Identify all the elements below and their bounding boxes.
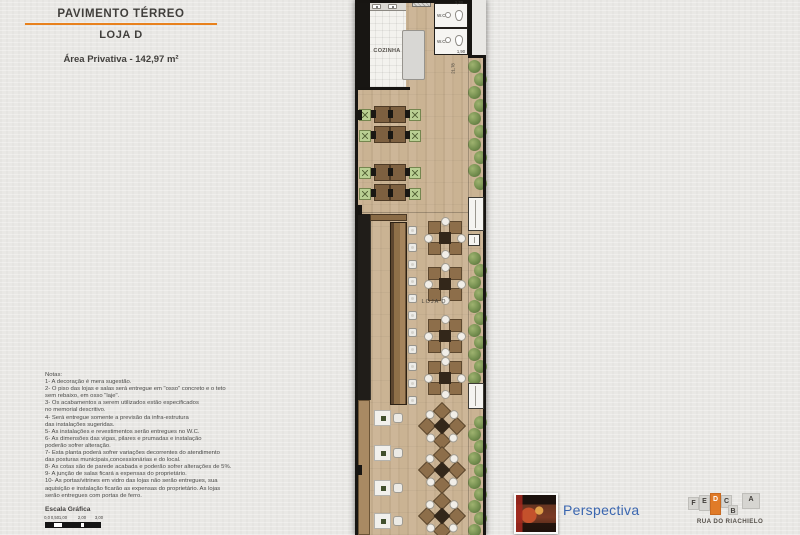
chair-icon xyxy=(405,110,410,118)
chair-icon xyxy=(441,357,450,366)
table-center xyxy=(439,278,451,290)
chair-icon xyxy=(441,250,450,259)
chair-icon xyxy=(393,413,403,423)
floor-plan: COZINHA W.C. W.C. LOJA D 1,30 1,90 21,78 xyxy=(355,0,486,535)
scale-ticks: 0,0 0,50 1,00 2,00 3,00 xyxy=(45,515,105,521)
bar-stool xyxy=(408,311,417,320)
chair-icon xyxy=(441,348,450,357)
brand-logo: F E D C B A RUA DO RIACHIELO xyxy=(682,493,778,529)
perspective-thumbnail[interactable] xyxy=(514,493,558,534)
bar-stool xyxy=(408,243,417,252)
dining-table-4 xyxy=(417,491,468,535)
chair-icon xyxy=(441,315,450,324)
wc-room-1: W.C. xyxy=(434,3,468,28)
chair-icon xyxy=(405,189,410,197)
wall xyxy=(355,87,410,90)
store-label: LOJA D xyxy=(408,299,460,305)
scale-tick: 2,00 xyxy=(78,515,86,520)
scale-tick: 3,00 xyxy=(95,515,103,520)
floor-joint-line xyxy=(358,212,468,213)
kitchen-floor xyxy=(368,3,406,87)
chair-icon xyxy=(441,217,450,226)
bar-shelf xyxy=(370,214,407,221)
title-block: PAVIMENTO TÉRREO LOJA D Área Privativa -… xyxy=(25,8,217,65)
dining-table-4 xyxy=(427,318,463,354)
chair-icon xyxy=(388,131,393,139)
table-center xyxy=(439,372,451,384)
bar-stool xyxy=(408,379,417,388)
scale-tick: 1,00 xyxy=(59,515,67,520)
kitchen-sink-icon xyxy=(372,4,381,9)
wc-sink-icon xyxy=(445,37,451,43)
unit-title: LOJA D xyxy=(25,29,217,41)
scale-tick: 0,50 xyxy=(51,515,59,520)
dining-table-4 xyxy=(427,266,463,302)
column xyxy=(358,465,362,475)
logo-block-a: A xyxy=(742,493,760,509)
logo-block-e: E xyxy=(699,495,710,511)
armchair-icon xyxy=(409,130,421,142)
bar-stool xyxy=(408,226,417,235)
plant-icon xyxy=(468,60,481,73)
scale-title: Escala Gráfica xyxy=(45,506,135,513)
logo-block-d-highlight: D xyxy=(710,493,721,515)
dimension-side: 21,78 xyxy=(451,59,456,79)
chair-icon xyxy=(457,374,466,383)
chair-icon xyxy=(424,234,433,243)
area-label: Área Privativa - 142,97 m² xyxy=(25,54,217,65)
chair-icon xyxy=(457,280,466,289)
cafe-table xyxy=(374,480,391,496)
planter-edge xyxy=(468,57,469,535)
fridge-icon xyxy=(402,30,425,80)
column xyxy=(358,205,362,215)
chair-icon xyxy=(405,131,410,139)
chair-icon xyxy=(388,189,393,197)
chair-icon xyxy=(441,390,450,399)
plant-icon xyxy=(468,86,481,99)
bar-stool xyxy=(408,277,417,286)
plant-icon xyxy=(468,138,481,151)
dimension-top: 1,30 xyxy=(449,0,469,5)
chair-icon xyxy=(393,483,403,493)
table-center xyxy=(439,330,451,342)
bar-stool xyxy=(408,345,417,354)
table-center xyxy=(434,418,451,435)
chair-icon xyxy=(424,374,433,383)
armchair-icon xyxy=(409,109,421,121)
kitchen-sink-icon xyxy=(388,4,397,9)
chair-icon xyxy=(371,189,376,197)
lounge-seating-group xyxy=(359,104,421,146)
table-center xyxy=(439,232,451,244)
plant-icon xyxy=(468,524,481,535)
chair-icon xyxy=(388,110,393,118)
door-opening xyxy=(468,234,480,246)
armchair-icon xyxy=(359,130,371,142)
chair-icon xyxy=(371,131,376,139)
armchair-icon xyxy=(359,167,371,179)
graphic-scale: Escala Gráfica 0,0 0,50 1,00 2,00 3,00 xyxy=(45,506,135,528)
armchair-icon xyxy=(409,188,421,200)
perspective-label[interactable]: Perspectiva xyxy=(563,502,639,518)
dining-table-4 xyxy=(427,360,463,396)
armchair-icon xyxy=(359,188,371,200)
exterior-area xyxy=(471,0,486,55)
logo-block-b: B xyxy=(728,505,738,515)
chair-icon xyxy=(393,448,403,458)
cafe-table xyxy=(374,445,391,461)
chair-icon xyxy=(441,263,450,272)
plant-icon xyxy=(468,164,481,177)
brand-name: RUA DO RIACHIELO xyxy=(682,518,778,525)
chair-icon xyxy=(371,110,376,118)
table-center xyxy=(434,508,451,525)
bar-stool xyxy=(408,260,417,269)
wc-sink-icon xyxy=(445,12,451,18)
dining-table-4 xyxy=(427,220,463,256)
armchair-icon xyxy=(409,167,421,179)
kitchen-label: COZINHA xyxy=(368,48,406,54)
chair-icon xyxy=(457,332,466,341)
chair-icon xyxy=(388,168,393,176)
toilet-icon xyxy=(455,35,463,46)
wall xyxy=(358,3,370,89)
door-opening xyxy=(468,383,484,409)
cafe-table xyxy=(374,513,391,529)
dining-table-4 xyxy=(417,445,468,496)
chair-icon xyxy=(457,234,466,243)
bar-stool xyxy=(408,396,417,405)
scale-tick: 0,0 xyxy=(44,515,50,520)
wall xyxy=(483,57,486,535)
notes-text: Notas: 1- A decoração é mera sugestão. 2… xyxy=(45,372,280,500)
page-title: PAVIMENTO TÉRREO xyxy=(25,8,217,20)
logo-block-f: F xyxy=(688,497,699,510)
back-bar-counter xyxy=(358,214,371,400)
lounge-seating-group xyxy=(359,162,421,204)
chair-icon xyxy=(393,516,403,526)
bar-stool xyxy=(408,328,417,337)
bar-stool xyxy=(408,362,417,371)
cafe-table xyxy=(374,410,391,426)
chair-icon xyxy=(371,168,376,176)
plant-icon xyxy=(468,112,481,125)
column xyxy=(358,110,362,120)
chair-icon xyxy=(405,168,410,176)
chair-icon xyxy=(424,280,433,289)
toilet-icon xyxy=(455,10,463,21)
dimension-mid: 1,90 xyxy=(451,49,471,54)
table-center xyxy=(434,462,451,479)
title-divider xyxy=(25,23,217,25)
scale-bar xyxy=(45,522,101,528)
door-opening xyxy=(468,197,484,231)
chair-icon xyxy=(424,332,433,341)
bar-counter xyxy=(390,222,407,405)
